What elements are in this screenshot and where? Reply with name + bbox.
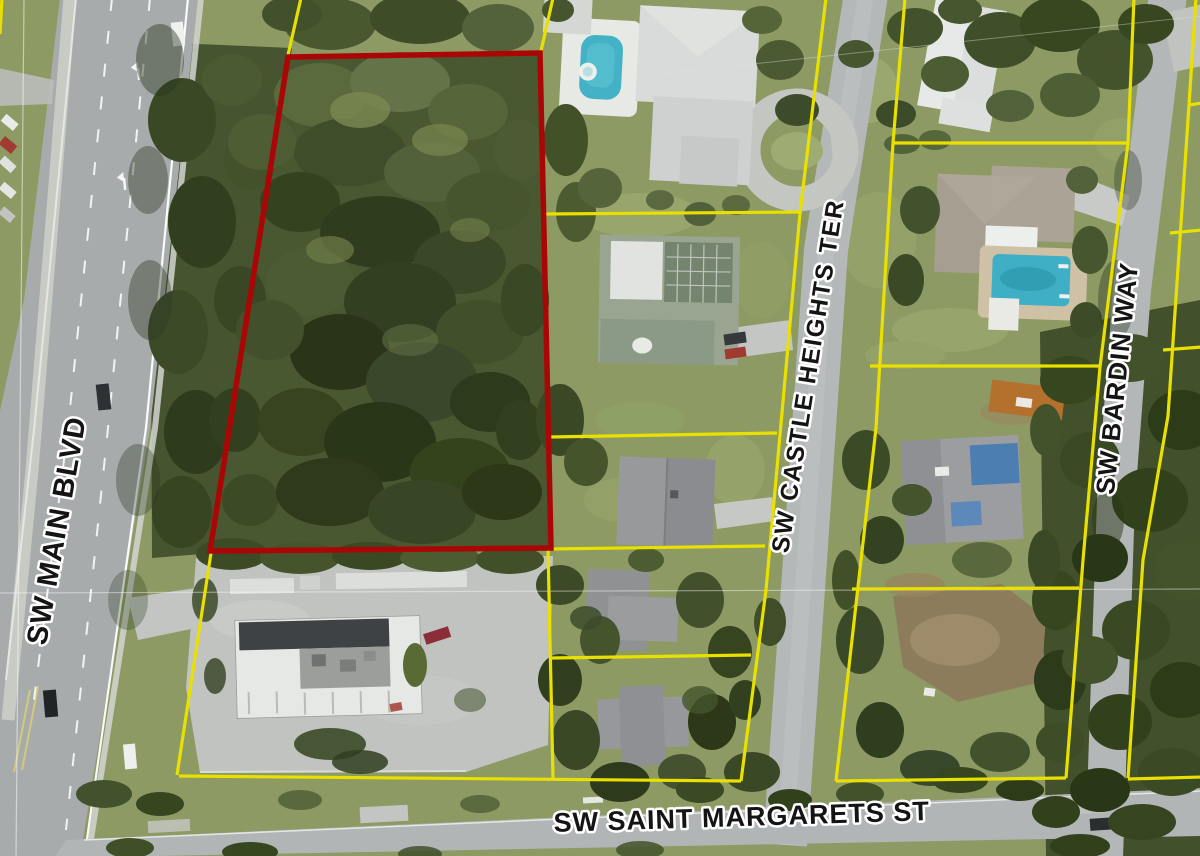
aerial-map-canvas[interactable]: SW MAIN BLVD SW CASTLE HEIGHTS TER SW BA… — [0, 0, 1200, 856]
commercial-building — [235, 616, 423, 719]
map-viewport[interactable]: SW MAIN BLVD SW CASTLE HEIGHTS TER SW BA… — [0, 0, 1200, 856]
house-gray-gable — [616, 456, 715, 547]
house-green-roof — [598, 235, 740, 365]
